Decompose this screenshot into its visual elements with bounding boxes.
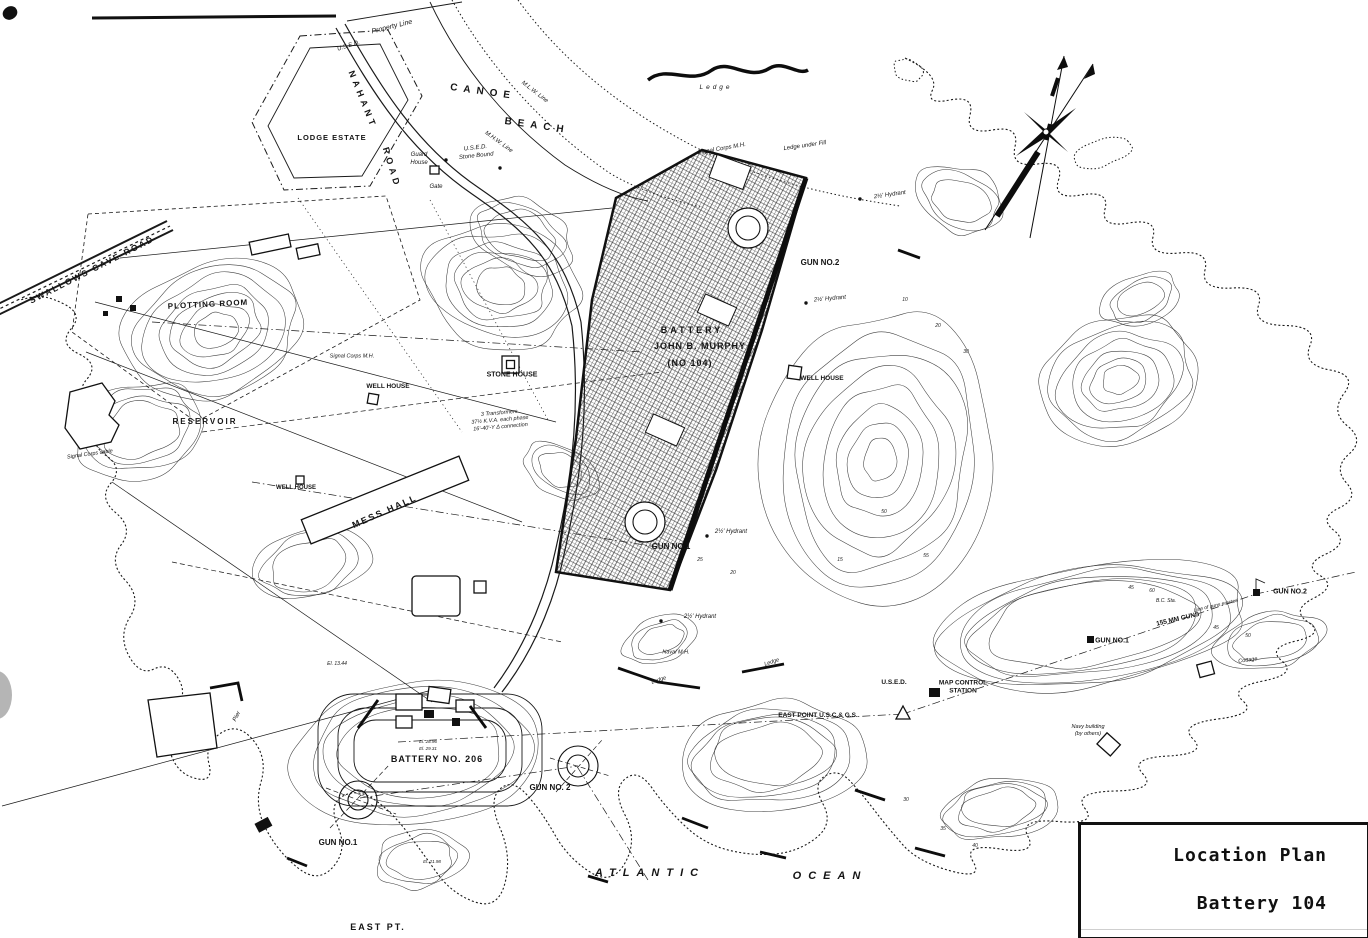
contour-elevation: 30 <box>963 349 969 355</box>
map-canvas: Property LineU.S.E.D.NAHANTROADCANOEBEAC… <box>0 0 1368 938</box>
contour-elevation: 20 <box>730 570 736 576</box>
contour-elevation: 25 <box>697 557 703 563</box>
compass-rose <box>985 56 1095 238</box>
contour-elevation: 50 <box>881 509 887 515</box>
title-block-line1: Location Plan <box>1173 845 1327 866</box>
contour-elevation: 45 <box>1128 585 1134 591</box>
title-block: Location Plan Battery 104 <box>1078 822 1368 938</box>
map-linework <box>0 0 1368 938</box>
contour-elevation: 30 <box>903 797 909 803</box>
contour-elevation: 10 <box>902 297 908 303</box>
contour-elevation: 40 <box>972 843 978 849</box>
contour-elevation: 50 <box>1245 633 1251 639</box>
title-block-line2: Battery 104 <box>1197 893 1327 914</box>
parcel-boundaries <box>72 30 422 422</box>
contour-elevation: 60 <box>1149 588 1155 594</box>
contour-elevation: 55 <box>923 553 929 559</box>
contour-elevation: 20 <box>935 323 941 329</box>
contour-elevation: 15 <box>837 557 843 563</box>
contour-elevation: 35 <box>940 826 946 832</box>
title-block-divider <box>1081 929 1367 930</box>
battery-104-structure <box>556 150 806 590</box>
contour-elevation: 45 <box>1213 625 1219 631</box>
